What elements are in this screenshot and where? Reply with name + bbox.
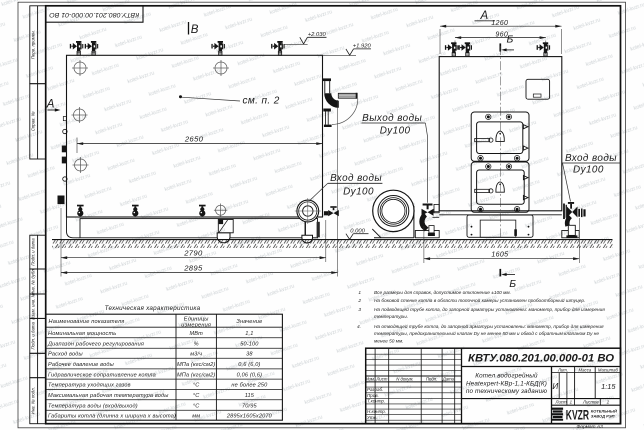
svg-text:4.: 4.: [357, 324, 361, 330]
svg-text:Инв. № подл.: Инв. № подл.: [30, 387, 35, 414]
svg-text:Листов: Листов: [582, 400, 599, 405]
svg-text:2: 2: [357, 298, 361, 304]
svg-text:Температура уходящих газов: Температура уходящих газов: [48, 383, 131, 389]
svg-text:KVZR: KVZR: [566, 408, 589, 423]
svg-text:Максимальная рабочая температу: Максимальная рабочая температура воды: [48, 393, 169, 399]
svg-text:Взам. инв. №: Взам. инв. №: [30, 292, 35, 319]
svg-text:Н.контр.: Н.контр.: [367, 409, 386, 414]
svg-text:Вход воды: Вход воды: [330, 173, 382, 184]
svg-text:°С: °С: [193, 403, 200, 409]
svg-text:Подп. и дата: Подп. и дата: [30, 322, 35, 350]
svg-text:+2.030: +2.030: [308, 32, 327, 38]
svg-text:Лист: Лист: [555, 400, 567, 405]
svg-text:Б: Б: [507, 33, 514, 45]
svg-text:1260: 1260: [491, 19, 508, 27]
svg-text:А: А: [46, 99, 55, 111]
svg-text:Dy100: Dy100: [573, 165, 604, 176]
svg-text:Масса: Масса: [579, 368, 592, 373]
svg-text:2895х1605х2070: 2895х1605х2070: [226, 414, 273, 420]
svg-text:Пров.: Пров.: [367, 393, 379, 398]
svg-text:по техническому заданию: по техническому заданию: [466, 387, 547, 395]
svg-text:°С: °С: [193, 393, 200, 399]
svg-text:38: 38: [246, 352, 253, 358]
svg-text:ЗАВОД РЭП: ЗАВОД РЭП: [591, 414, 615, 419]
svg-text:Heatexpert-КВр-1,1-КБД(К): Heatexpert-КВр-1,1-КБД(К): [466, 380, 547, 387]
svg-text:температуры, предохранительный: температуры, предохранительный клапан Dy…: [374, 330, 599, 337]
svg-text:И: И: [552, 382, 558, 391]
svg-text:Т.контр.: Т.контр.: [367, 399, 385, 404]
svg-text:0.000: 0.000: [350, 228, 365, 234]
svg-text:Наименование показателя: Наименование показателя: [49, 319, 125, 325]
svg-text:Расход воды: Расход воды: [48, 352, 83, 358]
svg-text:Б: Б: [509, 278, 516, 290]
svg-text:°С: °С: [193, 383, 200, 389]
svg-text:50-100: 50-100: [240, 341, 259, 347]
svg-text:Техническая характеристика: Техническая характеристика: [105, 305, 201, 312]
svg-text:Выход воды: Выход воды: [362, 113, 422, 124]
svg-text:Изм.: Изм.: [366, 377, 375, 382]
svg-text:Гидравлическое сопративление к: Гидравлическое сопративление котла: [48, 372, 156, 378]
svg-text:мм: мм: [192, 414, 200, 420]
svg-text:см. п. 2: см. п. 2: [243, 96, 280, 107]
svg-text:м3/ч: м3/ч: [190, 352, 202, 358]
svg-text:Dy100: Dy100: [343, 186, 374, 197]
svg-text:N докум.: N докум.: [396, 377, 413, 382]
svg-text:измерения: измерения: [181, 322, 211, 328]
svg-text:Значение: Значение: [236, 319, 262, 325]
svg-text:Котел водогрейный: Котел водогрейный: [475, 372, 538, 380]
svg-text:Справ. №: Справ. №: [30, 111, 35, 131]
svg-text:Номинальная мощность: Номинальная мощность: [48, 331, 116, 337]
svg-text:Рабочее давление воды: Рабочее давление воды: [48, 362, 114, 368]
svg-text:Разраб.: Разраб.: [367, 387, 383, 392]
svg-text:На подводящей трубе котла, д: На подводящей трубе котла, до запорной а…: [374, 306, 605, 313]
svg-text:не более 250: не более 250: [231, 383, 268, 389]
svg-text:На отводящей трубе котла, до з: На отводящей трубе котла, до запорной ар…: [374, 323, 604, 330]
svg-text:1605: 1605: [491, 250, 508, 258]
svg-text:0,6 (6,0): 0,6 (6,0): [238, 362, 260, 368]
svg-text:3: 3: [358, 307, 361, 313]
svg-text:МПа (кгс/см2): МПа (кгс/см2): [177, 362, 215, 368]
svg-text:2650: 2650: [184, 134, 204, 143]
svg-text:КВТУ.080.201.00.000-01 ВО: КВТУ.080.201.00.000-01 ВО: [49, 11, 139, 18]
svg-text:%: %: [194, 341, 199, 347]
svg-text:Масштаб: Масштаб: [598, 368, 619, 373]
svg-text:МПа (кгс/см2): МПа (кгс/см2): [177, 372, 215, 378]
svg-text:А: А: [480, 10, 489, 22]
svg-text:Утв.: Утв.: [367, 415, 377, 420]
svg-text:Формат А3: Формат А3: [577, 424, 604, 430]
svg-text:2790: 2790: [183, 248, 203, 257]
svg-text:0,06 (0,6): 0,06 (0,6): [237, 372, 262, 378]
svg-text:Подп.: Подп.: [426, 377, 437, 382]
svg-text:Габариты котла (длинна х ширин: Габариты котла (длинна х ширина х высота…: [48, 414, 176, 420]
svg-text:+1.920: +1.920: [353, 44, 372, 50]
svg-text:Диапазон рабочего регулировани: Диапазон рабочего регулирования: [47, 341, 144, 347]
svg-text:Лист: Лист: [375, 377, 387, 382]
svg-text:2: 2: [606, 400, 610, 405]
svg-text:1:15: 1:15: [601, 382, 616, 391]
svg-text:КВТУ.080.201.00.000-01 ВО: КВТУ.080.201.00.000-01 ВО: [468, 353, 614, 365]
svg-text:2895: 2895: [183, 263, 203, 272]
svg-text:На боковой стенке котла в обла: На боковой стенке котла в области топочн…: [374, 297, 585, 304]
svg-text:Температура воды (вход/выход): Температура воды (вход/выход): [48, 403, 138, 409]
svg-text:температуры.: температуры.: [374, 315, 408, 320]
svg-text:1,1: 1,1: [245, 331, 253, 337]
svg-text:1: 1: [358, 290, 361, 296]
svg-text:Dy100: Dy100: [380, 126, 411, 137]
svg-text:МВт: МВт: [189, 331, 203, 337]
svg-text:70/95: 70/95: [242, 403, 257, 409]
svg-text:Все размеры для справок, допус: Все размеры для справок, допустимое откл…: [374, 290, 511, 296]
svg-text:Дата: Дата: [442, 377, 455, 382]
svg-text:115: 115: [245, 393, 255, 399]
svg-text:менее 50 мм.: менее 50 мм.: [374, 338, 404, 344]
svg-text:Лит.: Лит.: [557, 368, 568, 373]
svg-text:Вход воды: Вход воды: [565, 153, 617, 164]
svg-text:В: В: [191, 24, 199, 36]
svg-text:Перв. примен.: Перв. примен.: [30, 30, 35, 59]
svg-text:Подп. и дата: Подп. и дата: [30, 238, 35, 266]
svg-text:Инв. № дубл.: Инв. № дубл.: [30, 268, 35, 295]
